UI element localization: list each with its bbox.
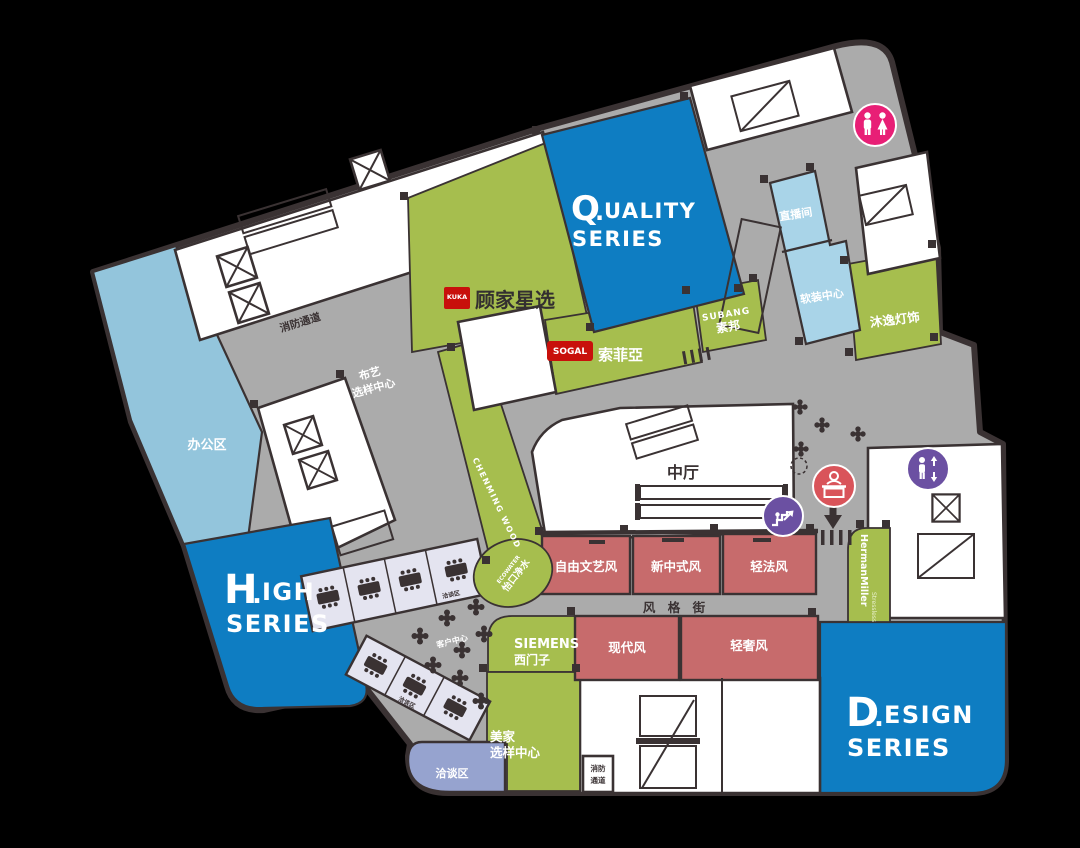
label-fire-bottom-2: 通道 <box>591 775 606 785</box>
label-siemens-cn: 西门子 <box>514 652 550 667</box>
label-hermanmiller: HermanMiller <box>858 534 869 607</box>
label-room-qingfa: 轻法风 <box>750 559 788 574</box>
kuka-logo-text: KUKA <box>447 293 467 301</box>
reception-icon[interactable] <box>813 465 855 507</box>
svg-text:UALITY: UALITY <box>604 199 696 223</box>
svg-text:SERIES: SERIES <box>226 610 330 638</box>
label-sogal: 索菲亞 <box>598 346 643 364</box>
label-stressless: Stressless <box>870 592 877 622</box>
label-fire-bottom-1: 消防 <box>591 763 606 773</box>
escalator-icon[interactable] <box>763 496 803 536</box>
svg-text:ESIGN: ESIGN <box>884 701 974 729</box>
svg-text:.: . <box>595 198 604 226</box>
room-white-mid <box>458 306 556 410</box>
label-style-street: 风 格 街 <box>643 600 709 615</box>
svg-text:SERIES: SERIES <box>572 227 664 251</box>
rooms-top-right-b <box>856 152 940 274</box>
elevator-icon[interactable] <box>907 448 949 490</box>
label-room-ziyouwenyi: 自由文艺风 <box>555 559 618 574</box>
fire-passage-bottom-box <box>583 756 613 792</box>
svg-text:.: . <box>252 580 262 610</box>
label-room-xinzhongshi: 新中式风 <box>651 559 702 574</box>
label-atrium: 中厅 <box>667 463 699 482</box>
label-office: 办公区 <box>187 437 226 453</box>
svg-text:SERIES: SERIES <box>847 734 951 762</box>
sogal-logo-text: SOGAL <box>553 347 587 357</box>
elevator-box-icon <box>932 494 959 521</box>
svg-text:IGH: IGH <box>262 578 315 606</box>
high-series-title: H . IGH SERIES <box>224 567 330 638</box>
label-siemens-en: SIEMENS <box>514 637 579 652</box>
floorplan-canvas: 洽谈区 洽谈区 <box>0 0 1080 848</box>
label-negotiation: 洽谈区 <box>436 766 469 780</box>
rooms-bottom-stairs <box>580 678 820 793</box>
atrium-hall <box>532 404 794 540</box>
restroom-icon[interactable] <box>854 104 896 146</box>
label-meijia-2: 选样中心 <box>490 745 541 760</box>
label-room-xiandai: 现代风 <box>608 640 646 655</box>
label-meijia-1: 美家 <box>490 729 516 744</box>
svg-text:.: . <box>874 703 884 733</box>
label-kuka: 顾家星选 <box>475 288 555 312</box>
kuka-brand: KUKA 顾家星选 <box>444 287 555 312</box>
label-room-qingshe: 轻奢风 <box>730 638 768 653</box>
